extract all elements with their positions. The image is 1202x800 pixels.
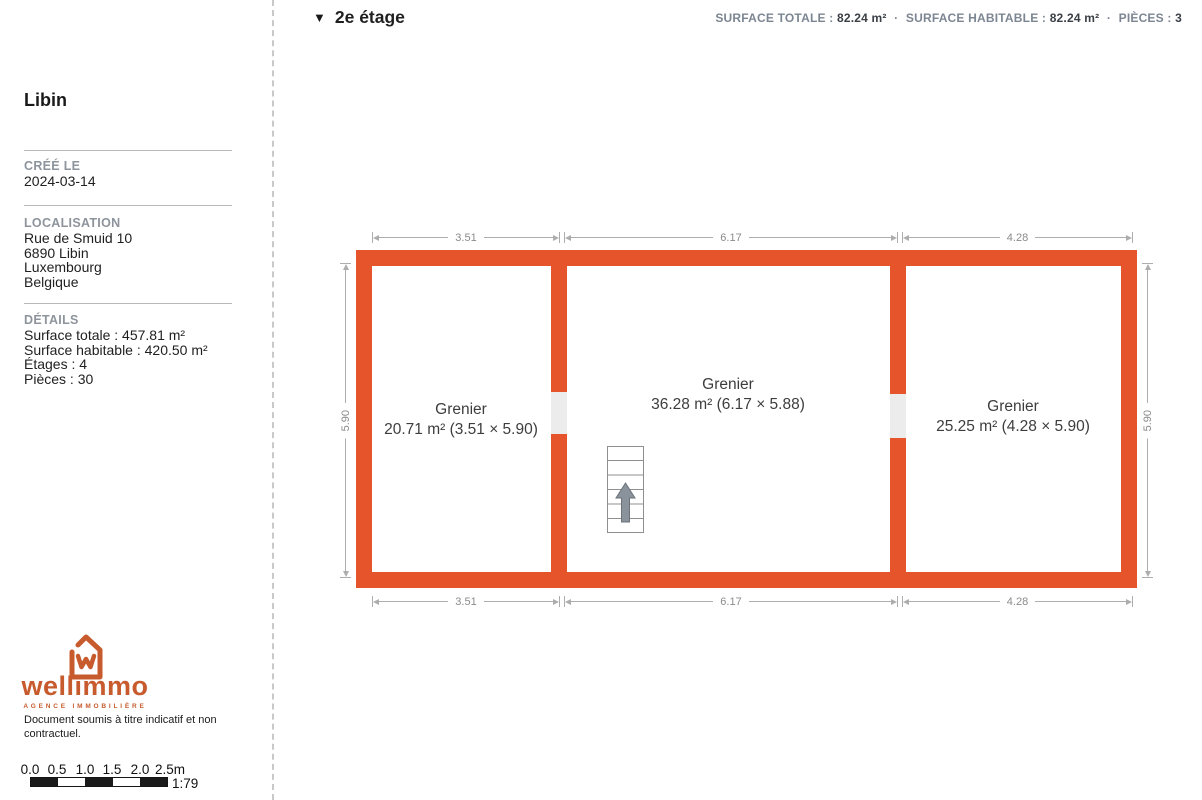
brand-tagline: AGENCE IMMOBILIÈRE [0,703,170,710]
detail-line: Surface totale : 457.81 m² [24,328,208,343]
scale-bar-segment [58,778,85,786]
room-grenier-1: Grenier 20.71 m² (3.51 × 5.90) [351,400,571,439]
dimension-top-1: 3.51 [372,231,560,244]
stairs-up-arrow-icon [607,446,644,538]
stat-separator: · [1107,11,1111,25]
dimension-bottom-1: 3.51 [372,595,560,608]
room-grenier-2: Grenier 36.28 m² (6.17 × 5.88) [618,375,838,414]
dimension-label: 6.17 [713,596,748,608]
scale-bar-segment [113,778,140,786]
stat-label: SURFACE TOTALE : [715,11,833,25]
stat-label: SURFACE HABITABLE : [906,11,1046,25]
room-area: 20.71 m² (3.51 × 5.90) [351,420,571,440]
scale-tick-label: 0.0 [21,762,40,777]
room-name: Grenier [903,397,1123,417]
location-lines: Rue de Smuid 10 6890 Libin Luxembourg Be… [24,231,132,289]
created-value: 2024-03-14 [24,174,96,189]
sidebar-divider [24,303,232,304]
room-area: 25.25 m² (4.28 × 5.90) [903,417,1123,437]
dimension-label: 3.51 [448,232,483,244]
floor-stats: SURFACE TOTALE : 82.24 m² · SURFACE HABI… [715,11,1182,25]
room-grenier-3: Grenier 25.25 m² (4.28 × 5.90) [903,397,1123,436]
dimension-label: 5.90 [1142,403,1154,438]
room-name: Grenier [351,400,571,420]
disclaimer-text: Document soumis à titre indicatif et non… [24,714,229,742]
address-line: Belgique [24,275,132,290]
scale-tick-label: 1.0 [76,762,95,777]
room-area: 36.28 m² (6.17 × 5.88) [618,395,838,415]
sidebar-divider [24,150,232,151]
detail-line: Surface habitable : 420.50 m² [24,343,208,358]
stat-value: 82.24 m² [1050,11,1100,25]
stat-label: PIÈCES : [1119,11,1172,25]
dimension-bottom-3: 4.28 [902,595,1133,608]
dimension-label: 4.28 [1000,596,1035,608]
stat-value: 3 [1175,11,1182,25]
dimension-bottom-2: 6.17 [564,595,898,608]
scale-bar-segment [31,778,58,786]
dimension-label: 5.90 [340,403,352,438]
scale-bar [30,777,168,787]
scale-bar-segment [85,778,112,786]
scale-tick-label: 1.5 [103,762,122,777]
scale-tick-label: 0.5 [48,762,67,777]
dimension-top-2: 6.17 [564,231,898,244]
dimension-label: 4.28 [1000,232,1035,244]
dimension-right: 5.90 [1141,263,1154,578]
address-line: 6890 Libin [24,246,132,261]
brand-wordmark: wellimmo [0,671,170,702]
dimension-label: 3.51 [448,596,483,608]
scale-tick-label: 2.0 [131,762,150,777]
address-line: Luxembourg [24,260,132,275]
property-title: Libin [24,90,67,111]
scale-bar-segment [140,778,167,786]
detail-line: Étages : 4 [24,357,208,372]
details-label: DÉTAILS [24,313,79,327]
detail-line: Pièces : 30 [24,372,208,387]
floor-section-toggle[interactable]: ▼ 2e étage [313,7,405,28]
location-label: LOCALISATION [24,216,120,230]
created-label: CRÉÉ LE [24,159,80,173]
dimension-top-3: 4.28 [902,231,1133,244]
floorplan-page: Libin CRÉÉ LE 2024-03-14 LOCALISATION Ru… [0,0,1202,800]
scale-ratio: 1:79 [172,776,198,791]
stat-separator: · [894,11,898,25]
details-lines: Surface totale : 457.81 m² Surface habit… [24,328,208,386]
sidebar-main-divider [272,0,274,800]
chevron-down-icon: ▼ [313,10,326,25]
address-line: Rue de Smuid 10 [24,231,132,246]
dimension-left: 5.90 [339,263,352,578]
floor-title: 2e étage [335,7,405,28]
dimension-label: 6.17 [713,232,748,244]
stat-value: 82.24 m² [837,11,887,25]
room-name: Grenier [618,375,838,395]
sidebar-divider [24,205,232,206]
scale-tick-label: 2.5m [155,762,185,777]
